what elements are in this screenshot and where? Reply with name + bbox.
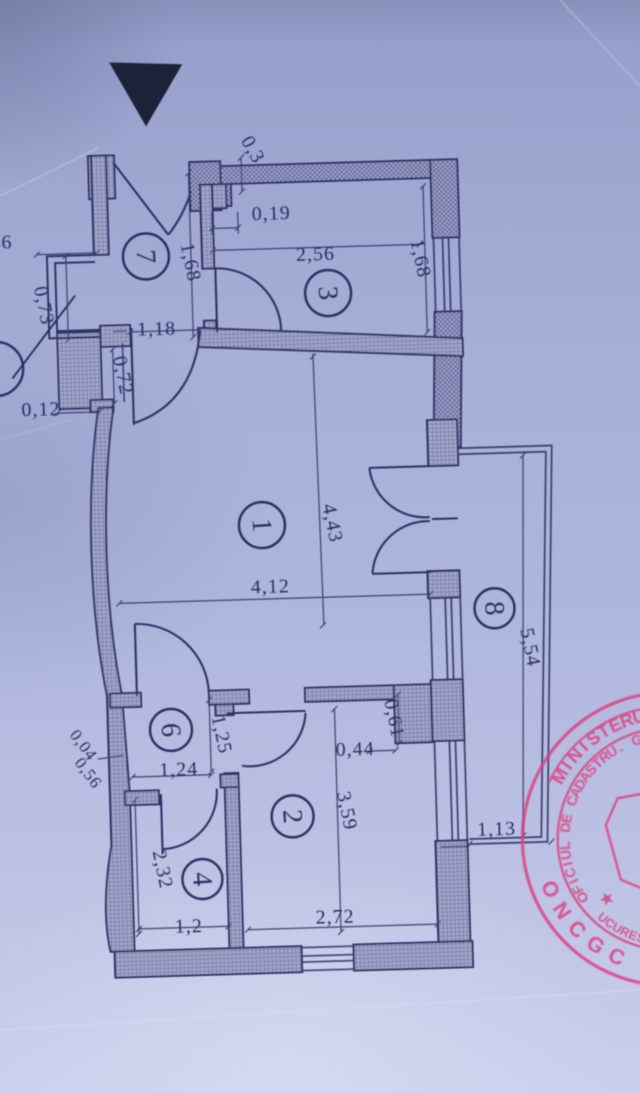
svg-text:4: 4 <box>186 871 218 887</box>
svg-text:O: O <box>536 877 565 902</box>
svg-text:0,56: 0,56 <box>71 754 106 792</box>
svg-text:C: C <box>605 943 629 971</box>
svg-text:0,73: 0,73 <box>29 284 58 327</box>
svg-text:1,2: 1,2 <box>175 915 204 938</box>
svg-text:3,59: 3,59 <box>332 790 361 833</box>
svg-text:8: 8 <box>478 600 510 616</box>
svg-text:1,24: 1,24 <box>159 758 199 781</box>
svg-text:46: 46 <box>0 231 13 254</box>
svg-text:4,12: 4,12 <box>250 575 290 598</box>
svg-text:2: 2 <box>276 808 308 824</box>
svg-text:1,18: 1,18 <box>137 318 177 341</box>
svg-text:7: 7 <box>130 248 162 264</box>
svg-text:2,72: 2,72 <box>315 906 355 929</box>
svg-text:6: 6 <box>155 722 187 738</box>
svg-text:L: L <box>556 840 573 850</box>
svg-text:2,56: 2,56 <box>296 243 336 266</box>
svg-text:3: 3 <box>312 285 344 301</box>
svg-text:1,13: 1,13 <box>477 818 517 841</box>
svg-text:★: ★ <box>594 886 620 912</box>
svg-text:C: C <box>563 915 591 943</box>
svg-text:1: 1 <box>246 517 278 533</box>
svg-text:G: G <box>582 930 609 959</box>
svg-text:G: G <box>629 730 640 749</box>
svg-text:4,43: 4,43 <box>317 502 346 545</box>
svg-text:N: N <box>548 898 577 924</box>
svg-text:0,12: 0,12 <box>21 398 61 421</box>
svg-text:E: E <box>558 812 576 824</box>
svg-text:5,54: 5,54 <box>515 626 544 669</box>
svg-text:0,44: 0,44 <box>335 738 375 761</box>
svg-text:1,68: 1,68 <box>406 237 435 280</box>
svg-text:2,32: 2,32 <box>148 848 177 891</box>
svg-text:0,19: 0,19 <box>251 202 291 225</box>
